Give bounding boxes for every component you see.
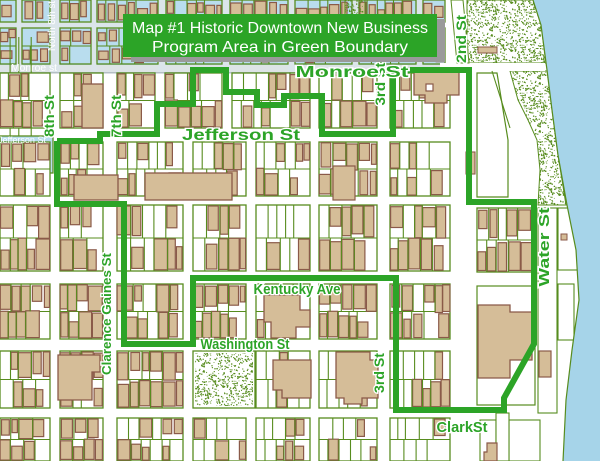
svg-text:7th St: 7th St: [109, 94, 124, 137]
svg-text:North 8th st: North 8th st: [47, 1, 58, 51]
svg-text:Kentucky Ave: Kentucky Ave: [254, 281, 341, 298]
svg-text:ClarkSt: ClarkSt: [437, 419, 488, 436]
svg-text:Jefferson St: Jefferson St: [0, 135, 46, 145]
svg-text:Water St: Water St: [536, 208, 553, 287]
svg-text:Monroe st: Monroe st: [11, 63, 57, 74]
svg-text:Clarence Gaines St: Clarence Gaines St: [99, 252, 114, 375]
svg-text:8th St: 8th St: [42, 94, 57, 137]
svg-text:Jefferson St: Jefferson St: [182, 127, 301, 144]
svg-text:Map #1 Historic Downtown New B: Map #1 Historic Downtown New Business: [132, 20, 428, 37]
svg-text:Program Area in Green Boundary: Program Area in Green Boundary: [152, 39, 408, 56]
svg-text:2nd St: 2nd St: [453, 15, 469, 63]
svg-text:Washington St: Washington St: [201, 336, 290, 353]
svg-text:3rd St: 3rd St: [371, 353, 387, 393]
svg-text:Monroe St: Monroe St: [296, 64, 410, 81]
